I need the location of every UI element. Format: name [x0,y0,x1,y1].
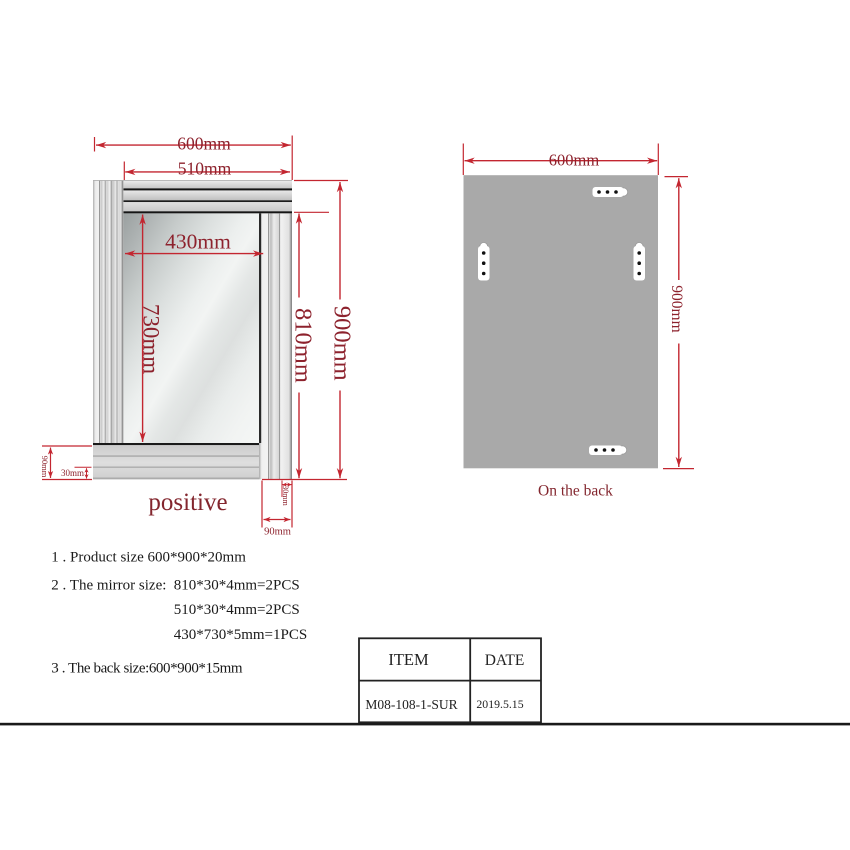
svg-text:On the back: On the back [538,483,613,500]
svg-text:430mm: 430mm [165,230,231,254]
svg-text:90mm: 90mm [40,456,50,478]
svg-text:900mm: 900mm [328,306,355,381]
svg-text:30mm: 30mm [61,468,84,478]
svg-text:510*30*4mm=2PCS: 510*30*4mm=2PCS [174,602,300,618]
svg-text:900mm: 900mm [668,285,685,332]
svg-text:ITEM: ITEM [388,650,429,669]
svg-text:2019.5.15: 2019.5.15 [476,697,523,711]
svg-text:600mm: 600mm [177,134,231,154]
svg-text:810mm: 810mm [290,308,317,383]
svg-text:810*30*4mm=2PCS: 810*30*4mm=2PCS [174,578,300,594]
svg-text:1 . Product size 600*900*20m: 1 . Product size 600*900*20mm [51,550,246,566]
svg-text:430*730*5mm=1PCS: 430*730*5mm=1PCS [174,627,307,643]
svg-text:3 . The back size:600*900*15mm: 3 . The back size:600*900*15mm [51,661,243,677]
svg-text:90mm: 90mm [264,527,291,538]
svg-text:2 . The mirror size:: 2 . The mirror size: [51,578,166,594]
svg-text:730mm: 730mm [139,304,164,374]
svg-text:600mm: 600mm [549,151,600,170]
svg-text:30mm: 30mm [281,485,290,506]
svg-text:510mm: 510mm [178,159,232,179]
svg-text:positive: positive [148,489,227,516]
svg-text:M08-108-1-SUR: M08-108-1-SUR [365,697,457,712]
svg-text:DATE: DATE [485,652,525,669]
